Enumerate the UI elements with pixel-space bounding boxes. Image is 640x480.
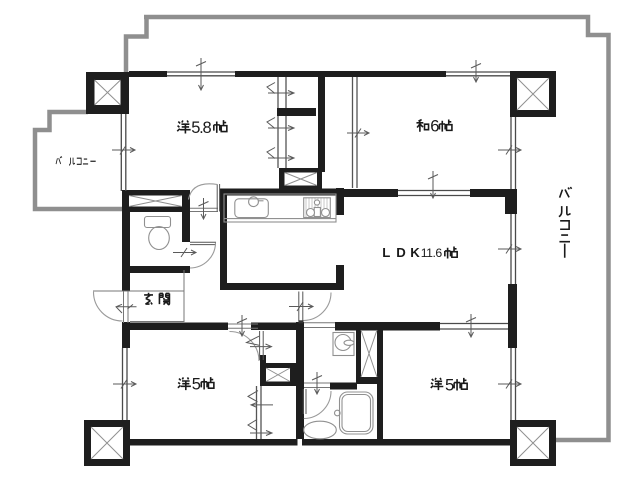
svg-text:5.8: 5.8	[191, 119, 212, 137]
svg-text:K: K	[410, 245, 420, 260]
svg-text:5: 5	[192, 376, 201, 394]
svg-text:6: 6	[430, 118, 439, 136]
svg-text:L: L	[382, 245, 390, 260]
svg-text:D: D	[396, 245, 406, 260]
svg-text:5: 5	[445, 375, 454, 394]
svg-text:11.6: 11.6	[421, 246, 443, 260]
